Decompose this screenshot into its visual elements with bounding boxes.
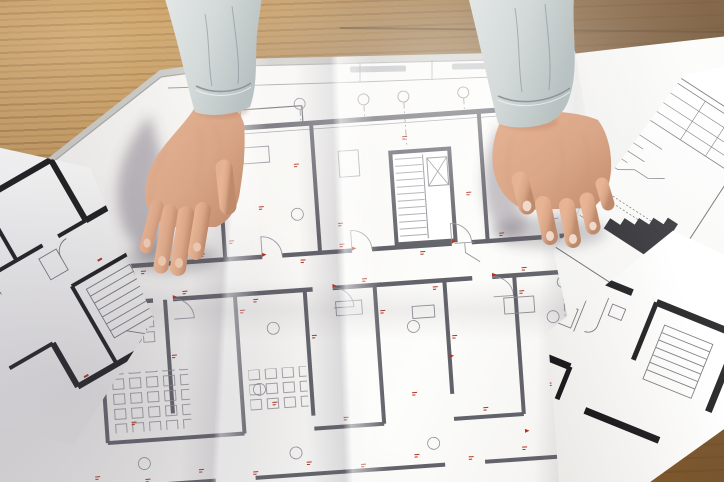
photo-hands-on-blueprints <box>0 0 724 482</box>
right-sleeve <box>468 0 575 128</box>
left-hand <box>143 102 248 268</box>
left-sleeve <box>164 0 262 115</box>
arms-and-hands <box>0 0 724 482</box>
